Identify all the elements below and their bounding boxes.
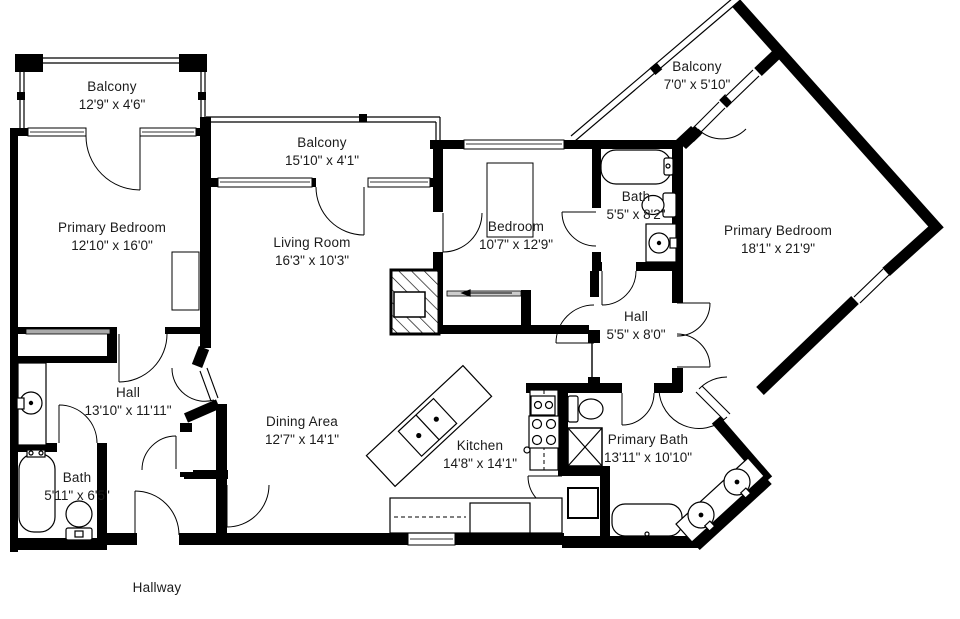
sink-hall-icon (17, 363, 46, 445)
room-label-living-room: Living Room16'3" x 10'3" (273, 234, 350, 270)
room-dimensions: 5'5" x 8'2" (606, 206, 665, 224)
room-label-hall-right: Hall5'5" x 8'0" (606, 308, 665, 344)
room-label-bath-lower: Bath5'11" x 6'5" (44, 469, 110, 505)
room-name: Primary Bedroom (724, 222, 832, 240)
room-name: Hallway (133, 579, 182, 597)
room-dimensions: 12'7" x 14'1" (265, 431, 339, 449)
room-label-primary-bedroom-left: Primary Bedroom12'10" x 16'0" (58, 219, 166, 255)
sliding-closet-left-icon (26, 329, 110, 334)
room-dimensions: 13'11" x 10'10" (604, 449, 692, 467)
room-name: Hall (606, 308, 665, 326)
room-label-primary-bedroom-right: Primary Bedroom18'1" x 21'9" (724, 222, 832, 258)
room-label-dining-area: Dining Area12'7" x 14'1" (265, 413, 339, 449)
room-label-balcony-top-left: Balcony12'9" x 4'6" (79, 78, 146, 114)
stove-icon (524, 416, 559, 453)
room-name: Balcony (79, 78, 146, 96)
room-name: Bedroom (479, 218, 553, 236)
door-gaps (57, 126, 654, 547)
room-label-primary-bath: Primary Bath13'11" x 10'10" (604, 431, 692, 467)
room-name: Bath (44, 469, 110, 487)
bathtub-primary-icon (612, 504, 682, 536)
toilet-lower-icon (66, 501, 92, 540)
room-name: Balcony (285, 134, 359, 152)
room-name: Primary Bath (604, 431, 692, 449)
room-label-balcony-middle: Balcony15'10" x 4'1" (285, 134, 359, 170)
floorplan-page: Balcony12'9" x 4'6"Balcony15'10" x 4'1"B… (0, 0, 960, 619)
shower-icon (568, 428, 602, 466)
room-name: Living Room (273, 234, 350, 252)
room-dimensions: 5'5" x 8'0" (606, 326, 665, 344)
washer-icon (568, 488, 598, 518)
room-dimensions: 7'0" x 5'10" (664, 76, 731, 94)
toilet-primary-icon (568, 396, 603, 422)
room-dimensions: 15'10" x 4'1" (285, 152, 359, 170)
bathtub-upper-icon (601, 150, 673, 184)
room-name: Hall (84, 384, 171, 402)
room-dimensions: 10'7" x 12'9" (479, 236, 553, 254)
closet-primary-left-icon (172, 252, 199, 310)
room-dimensions: 5'11" x 6'5" (44, 487, 110, 505)
room-dimensions: 16'3" x 10'3" (273, 252, 350, 270)
sliding-closet-bedroom-icon (447, 290, 521, 296)
room-label-hallway: Hallway (133, 579, 182, 597)
room-dimensions: 13'10" x 11'11" (84, 402, 171, 420)
room-label-hall-left: Hall13'10" x 11'11" (84, 384, 171, 420)
room-label-kitchen: Kitchen14'8" x 14'1" (443, 437, 517, 473)
sink-upper-icon (646, 224, 677, 262)
room-label-bedroom: Bedroom10'7" x 12'9" (479, 218, 553, 254)
room-label-balcony-right: Balcony7'0" x 5'10" (664, 58, 731, 94)
room-dimensions: 12'9" x 4'6" (79, 96, 146, 114)
room-name: Kitchen (443, 437, 517, 455)
room-dimensions: 12'10" x 16'0" (58, 237, 166, 255)
kitchen-lower-counter-icon (390, 498, 562, 533)
shaft-hatch-icon (391, 270, 439, 334)
room-name: Dining Area (265, 413, 339, 431)
room-dimensions: 18'1" x 21'9" (724, 240, 832, 258)
room-name: Balcony (664, 58, 731, 76)
room-name: Primary Bedroom (58, 219, 166, 237)
room-dimensions: 14'8" x 14'1" (443, 455, 517, 473)
room-label-bath-upper: Bath5'5" x 8'2" (606, 188, 665, 224)
room-name: Bath (606, 188, 665, 206)
